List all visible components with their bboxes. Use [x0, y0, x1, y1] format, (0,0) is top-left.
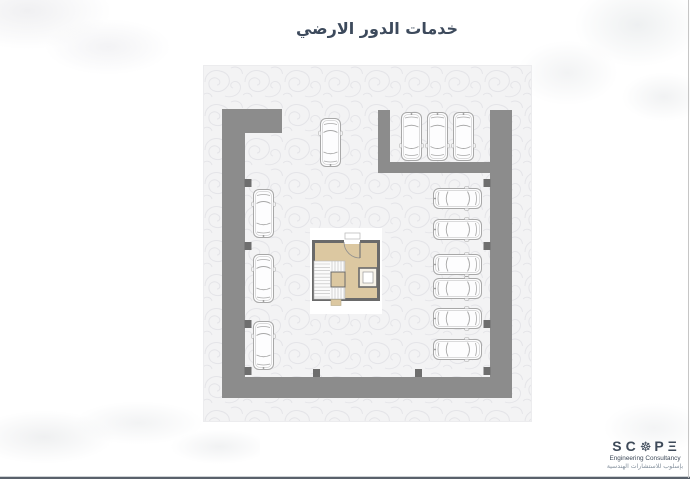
wall-bottom: [222, 377, 512, 398]
wall-left: [222, 109, 245, 398]
column-pilaster: [245, 179, 252, 187]
brand-letter: Ξ: [668, 439, 678, 454]
car: [434, 218, 482, 241]
slide: خدمات الدور الارضي: [0, 0, 690, 486]
floor-plan: [203, 65, 532, 422]
gear-icon: ☸: [640, 440, 652, 453]
column-pilaster: [245, 320, 252, 328]
stair-core-notch: [331, 272, 345, 287]
car: [434, 338, 482, 361]
page-title: خدمات الدور الارضي: [296, 19, 458, 38]
brand-letter: S: [612, 439, 622, 454]
door-header: [345, 233, 360, 239]
wall-right: [490, 110, 512, 398]
column-pilaster: [484, 367, 491, 375]
car: [252, 190, 275, 238]
car: [400, 113, 423, 161]
car: [426, 113, 449, 161]
company-logo: S C ☸ P Ξ Engineering Consultancy بإسلوب…: [605, 439, 685, 471]
column-pilaster: [245, 367, 252, 375]
car: [434, 277, 482, 300]
elevator-car: [363, 272, 373, 283]
car: [319, 119, 342, 167]
car: [252, 255, 275, 303]
column-pilaster: [484, 242, 491, 250]
car: [434, 187, 482, 210]
door-opening: [344, 240, 360, 245]
brand-letter: P: [654, 439, 664, 454]
car: [452, 113, 475, 161]
footer-divider: [0, 476, 690, 479]
column-pilaster: [484, 320, 491, 328]
brand-name: S C ☸ P Ξ: [605, 439, 685, 454]
car: [434, 307, 482, 330]
car: [434, 253, 482, 276]
right-edge-line: [688, 0, 689, 478]
logo-tagline-en: Engineering Consultancy: [605, 455, 685, 463]
column-pilaster: [484, 179, 491, 187]
car: [252, 322, 275, 370]
column-pilaster: [313, 369, 320, 377]
brand-letter: C: [626, 439, 637, 454]
logo-tagline-ar: بإسلوب للاستشارات الهندسية: [605, 463, 685, 471]
wall-bay-bottom: [378, 162, 490, 173]
core-bottom-stub: [331, 300, 341, 306]
corner-texture-top-left: [0, 0, 200, 95]
floor-plan-drawing: [203, 65, 532, 422]
corner-texture-top-right: [515, 0, 690, 145]
column-pilaster: [415, 369, 422, 377]
column-pilaster: [245, 242, 252, 250]
